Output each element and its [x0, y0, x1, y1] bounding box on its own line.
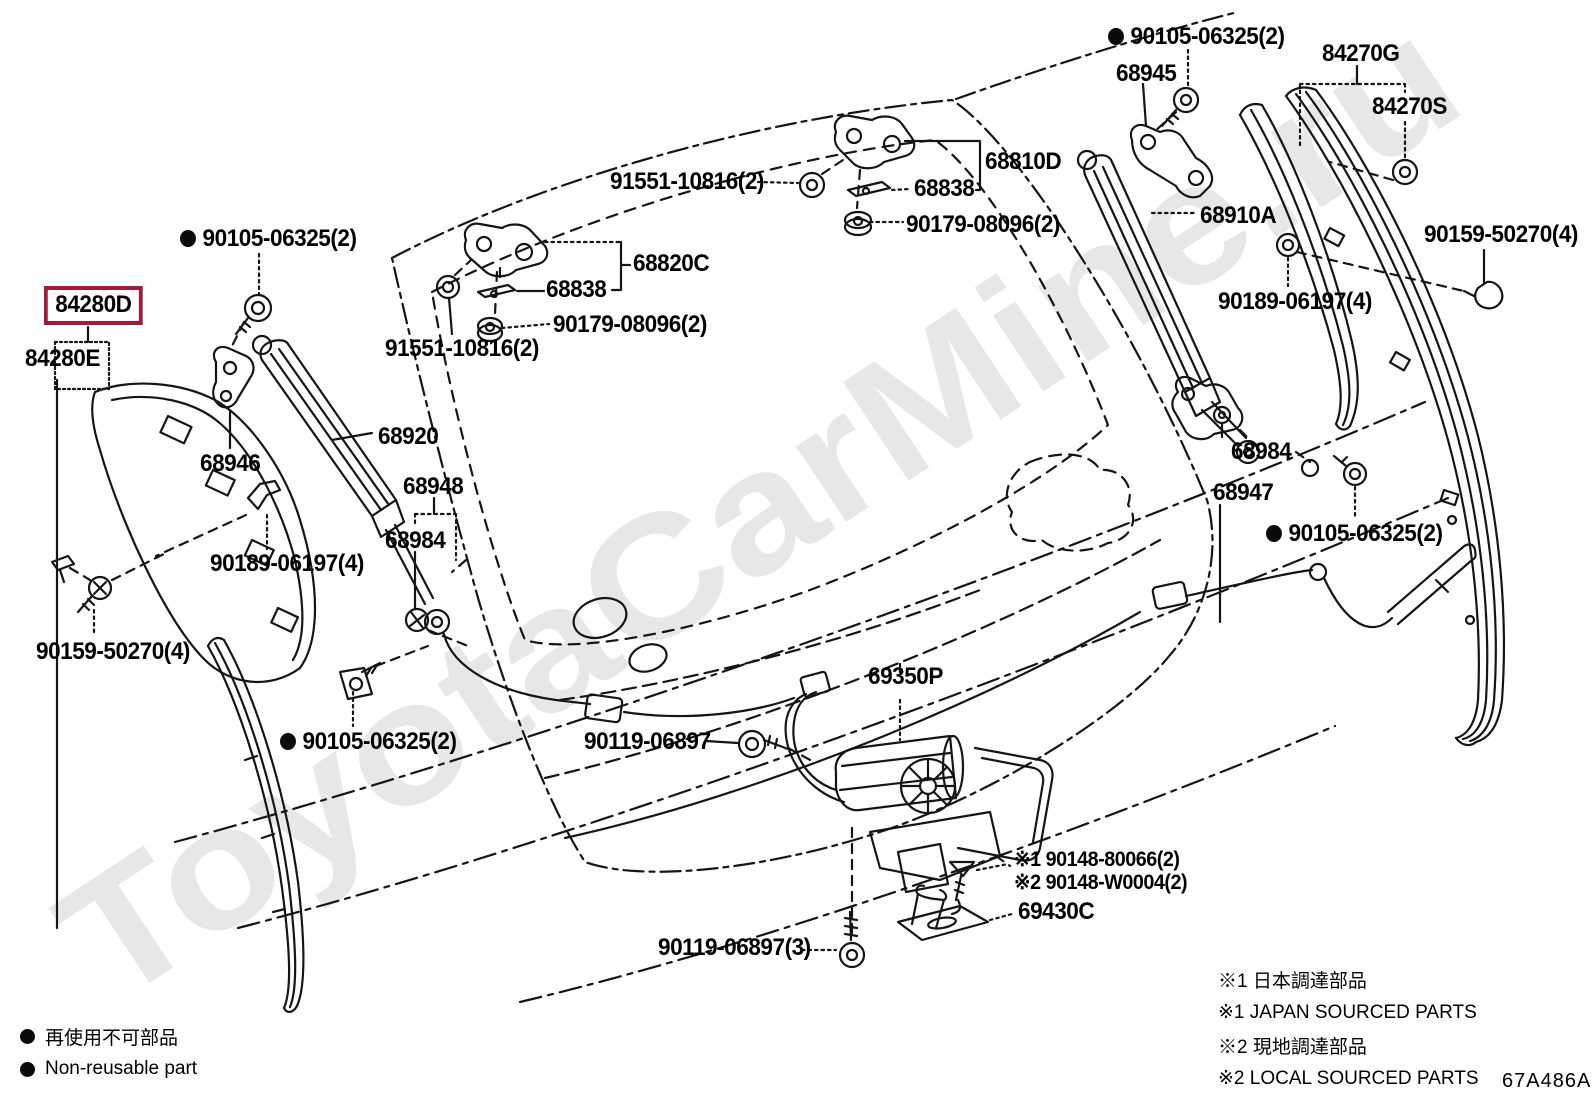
part-label-68820c[interactable]: 68820C — [633, 251, 709, 276]
non-reusable-bullet-icon — [180, 230, 196, 247]
part-label-68920[interactable]: 68920 — [378, 424, 438, 449]
part-label-91551-10816-2-mid[interactable]: 91551-10816(2) — [385, 336, 539, 361]
part-number-text: 90189-06197(4) — [1218, 289, 1372, 314]
part-label-90119-06897[interactable]: 90119-06897 — [584, 729, 711, 754]
part-label-90105-06325-2-left[interactable]: 90105-06325(2) — [180, 226, 357, 251]
non-reusable-bullet-icon — [1108, 28, 1124, 45]
part-number-text: 90159-50270(4) — [36, 639, 190, 664]
part-number-text: 68910A — [1200, 203, 1276, 228]
part-number-text: 91551-10816(2) — [610, 169, 764, 194]
part-label-90105-06325-2-topright[interactable]: 90105-06325(2) — [1108, 24, 1285, 49]
part-number-text: 69430C — [1018, 899, 1094, 924]
part-label-68810d[interactable]: 68810D — [985, 149, 1061, 174]
part-number-text: 68947 — [1213, 480, 1273, 505]
part-number-text: 90159-50270(4) — [1424, 222, 1578, 247]
part-number-text: 90119-06897 — [584, 729, 711, 754]
part-label-69430c[interactable]: 69430C — [1018, 899, 1094, 924]
part-number-text: ※2 90148-W0004(2) — [1014, 872, 1187, 894]
part-label-91551-10816-2-top[interactable]: 91551-10816(2) — [610, 169, 764, 194]
part-number-text: ※1 90148-80066(2) — [1014, 849, 1179, 871]
part-number-text: 90179-08096(2) — [906, 212, 1060, 237]
part-number-text: 68946 — [200, 451, 260, 476]
part-label-90105-06325-2-bottomleft[interactable]: 90105-06325(2) — [280, 729, 457, 754]
legend-local-sourced-en: ※2 LOCAL SOURCED PARTS — [1218, 1067, 1479, 1090]
part-label-90189-06197-4-right[interactable]: 90189-06197(4) — [1218, 289, 1372, 314]
part-label-90119-06897-3[interactable]: 90119-06897(3) — [658, 935, 811, 960]
legend-non-reusable: 再使用不可部品 Non-reusable part — [20, 1023, 197, 1080]
part-label-90189-06197-4-left[interactable]: 90189-06197(4) — [210, 551, 364, 576]
non-reusable-bullet-icon — [280, 733, 296, 750]
part-label-84270g[interactable]: 84270G — [1322, 41, 1399, 66]
part-number-text: 90105-06325(2) — [1289, 521, 1443, 546]
part-label-68910a[interactable]: 68910A — [1200, 203, 1276, 228]
part-label-69350p[interactable]: 69350P — [868, 664, 943, 689]
part-number-text: 68920 — [378, 424, 438, 449]
part-label-68984-left[interactable]: 68984 — [385, 528, 445, 553]
part-number-text: 84280E — [25, 346, 100, 371]
part-number-text: 68945 — [1116, 61, 1176, 86]
non-reusable-bullet-icon — [20, 1029, 35, 1044]
part-labels-layer: 90105-06325(2)84280D84280E68946689206894… — [0, 0, 1592, 1099]
legend-non-reusable-en: Non-reusable part — [45, 1058, 197, 1080]
part-number-text: 90105-06325(2) — [1131, 24, 1285, 49]
part-label-68838-top[interactable]: 68838 — [914, 176, 974, 201]
part-label-68946[interactable]: 68946 — [200, 451, 260, 476]
legend-local-sourced-jp: ※2 現地調達部品 — [1218, 1032, 1479, 1059]
part-label-90179-08096-2-mid[interactable]: 90179-08096(2) — [553, 312, 707, 337]
part-label-68945[interactable]: 68945 — [1116, 61, 1176, 86]
part-number-text: 68820C — [633, 251, 709, 276]
parts-diagram-page: ToyotaCarMine.ru — [0, 0, 1592, 1099]
part-label-68838-mid[interactable]: 68838 — [546, 277, 606, 302]
part-label-90148-80066[interactable]: ※1 90148-80066(2) — [1014, 849, 1179, 871]
part-number-text: 91551-10816(2) — [385, 336, 539, 361]
non-reusable-bullet-icon — [20, 1062, 35, 1077]
part-label-90105-06325-2-right[interactable]: 90105-06325(2) — [1266, 521, 1443, 546]
non-reusable-bullet-icon — [1266, 525, 1282, 542]
part-number-text: 90119-06897(3) — [658, 935, 811, 960]
part-number-text: 69350P — [868, 664, 943, 689]
part-label-90159-50270-4-right[interactable]: 90159-50270(4) — [1424, 222, 1578, 247]
legend-row-en: Non-reusable part — [20, 1058, 197, 1080]
part-label-90159-50270-4-left[interactable]: 90159-50270(4) — [36, 639, 190, 664]
part-number-text: 90179-08096(2) — [553, 312, 707, 337]
part-number-text: 84270S — [1372, 94, 1447, 119]
part-label-68947[interactable]: 68947 — [1213, 480, 1273, 505]
legend-japan-sourced-jp: ※1 日本調達部品 — [1218, 966, 1479, 993]
part-label-84270s[interactable]: 84270S — [1372, 94, 1447, 119]
legend-row-jp: 再使用不可部品 — [20, 1023, 197, 1050]
part-number-text: 68810D — [985, 149, 1061, 174]
part-number-text: 68984 — [1231, 439, 1291, 464]
part-number-text: 84280D — [55, 292, 131, 317]
part-label-84280e[interactable]: 84280E — [25, 346, 100, 371]
part-label-84280d[interactable]: 84280D — [44, 286, 143, 325]
part-number-text: 68838 — [914, 176, 974, 201]
part-label-90179-08096-2-top[interactable]: 90179-08096(2) — [906, 212, 1060, 237]
figure-code: 67A486A — [1502, 1070, 1591, 1093]
part-number-text: 90105-06325(2) — [303, 729, 457, 754]
part-label-68948[interactable]: 68948 — [403, 474, 463, 499]
part-number-text: 90189-06197(4) — [210, 551, 364, 576]
legend-non-reusable-jp: 再使用不可部品 — [45, 1023, 178, 1050]
part-number-text: 68984 — [385, 528, 445, 553]
part-number-text: 68838 — [546, 277, 606, 302]
legend-japan-sourced-en: ※1 JAPAN SOURCED PARTS — [1218, 1001, 1479, 1024]
part-label-68984-right[interactable]: 68984 — [1231, 439, 1291, 464]
part-number-text: 68948 — [403, 474, 463, 499]
part-number-text: 90105-06325(2) — [203, 226, 357, 251]
legend-sourced-parts: ※1 日本調達部品 ※1 JAPAN SOURCED PARTS ※2 現地調達… — [1218, 966, 1479, 1090]
part-number-text: 84270G — [1322, 41, 1399, 66]
part-label-90148-w0004[interactable]: ※2 90148-W0004(2) — [1014, 872, 1187, 894]
